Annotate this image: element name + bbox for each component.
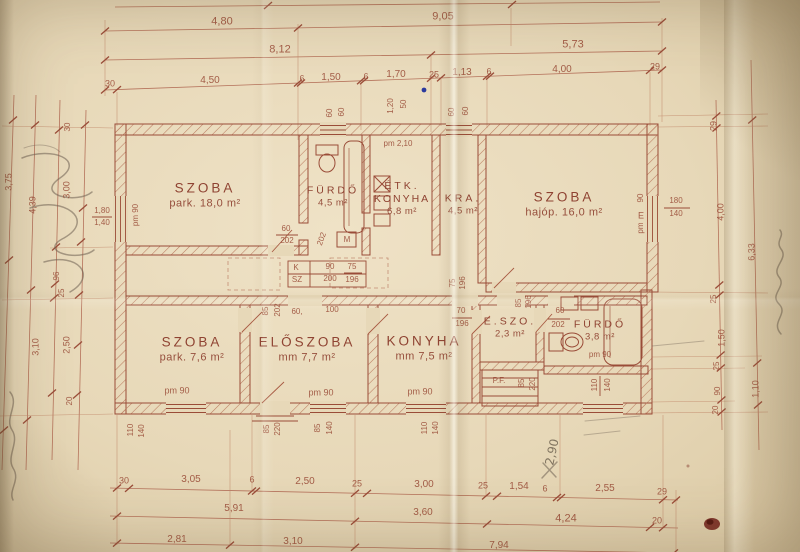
- dim-label: pm: [637, 222, 645, 233]
- room-name: SZOBA: [525, 190, 602, 207]
- room-label-szoba-16: SZOBAhajóp. 16,0 m²: [525, 190, 602, 221]
- dim-label: 85: [518, 379, 526, 388]
- dim-label: 100: [325, 306, 338, 314]
- dim-label: 4,50: [200, 76, 219, 86]
- dim-label: 196: [455, 320, 468, 328]
- dim-label: 6,33: [748, 243, 757, 261]
- dim-label: M: [344, 236, 351, 244]
- dim-label: 140: [432, 421, 440, 434]
- dim-label: pm 90: [132, 204, 140, 226]
- dim-label: 6: [486, 68, 491, 77]
- room-name: KONYHA: [386, 334, 461, 351]
- room-area: 3,8 m²: [574, 332, 626, 344]
- dim-label: 110: [421, 422, 429, 435]
- dim-label: 30: [119, 477, 129, 486]
- dim-label: 60,: [291, 308, 302, 316]
- dim-label: 196: [345, 276, 358, 284]
- dim-label: 140: [138, 424, 146, 437]
- room-name: FÜRDŐ: [307, 185, 359, 198]
- dim-label: 3,10: [32, 338, 41, 356]
- dim-label: 200: [323, 275, 336, 283]
- dim-label: 85: [515, 299, 523, 308]
- room-label-konyha-75: KONYHAmm 7,5 m²: [386, 334, 461, 365]
- dim-label: 4,39: [29, 196, 38, 214]
- dim-label: 3,60: [413, 508, 432, 518]
- dim-label: 75: [348, 263, 357, 271]
- room-area: 4,5 m²: [445, 206, 482, 218]
- dim-label: 25: [713, 362, 721, 371]
- dim-label: 140: [326, 421, 334, 434]
- dim-label: 4,80: [211, 17, 232, 28]
- dim-label: pm 90: [164, 387, 189, 396]
- dim-label: 60: [462, 107, 470, 116]
- dim-label: 29: [657, 488, 667, 497]
- room-area: park. 7,6 m²: [160, 352, 225, 366]
- room-area: mm 7,5 m²: [386, 351, 461, 365]
- dim-label: 1,54: [509, 482, 528, 492]
- room-label-etk-konyha: ÉTK.KONYHA6,8 m²: [374, 180, 430, 218]
- room-name-line2: KONYHA: [374, 193, 430, 206]
- dim-label: 3,00: [414, 480, 433, 490]
- room-label-furdo-45: FÜRDŐ4,5 m²: [307, 185, 359, 210]
- dim-label: 140: [604, 378, 612, 391]
- dim-label: E: [638, 212, 644, 221]
- dim-label: 29: [650, 63, 660, 72]
- room-name: E.SZO.: [484, 316, 536, 329]
- dim-label: 4,00: [552, 65, 571, 75]
- dim-label: 1,50: [321, 73, 340, 83]
- dim-label: 202: [551, 321, 564, 329]
- dim-label: 202: [274, 303, 282, 316]
- dim-label: 2,50: [295, 477, 314, 487]
- dim-label: 25: [429, 71, 439, 80]
- dim-label: 60: [326, 109, 334, 118]
- room-label-furdo-38: FÜRDŐ3,8 m²: [574, 319, 626, 344]
- dim-label: 7,94: [489, 541, 508, 551]
- dim-label: 2,50: [63, 336, 72, 354]
- dim-label: 60: [338, 108, 346, 117]
- room-name: ÉTK.: [374, 180, 430, 193]
- dim-label: 25: [352, 480, 362, 489]
- dim-label: 1,50: [718, 329, 727, 347]
- dim-label: K: [293, 264, 298, 272]
- dim-label: 29: [710, 121, 719, 131]
- dim-label: 3,05: [181, 475, 200, 485]
- dim-label: 85: [263, 425, 271, 434]
- dim-label: 60: [282, 225, 291, 233]
- room-label-eloszoba: ELŐSZOBAmm 7,7 m²: [259, 335, 356, 366]
- room-name: FÜRDŐ: [574, 319, 626, 332]
- dim-label: 90: [714, 387, 722, 396]
- dim-label: 1,70: [386, 70, 405, 80]
- room-label-kra: KRA.4,5 m²: [445, 193, 482, 218]
- room-area: 6,8 m²: [374, 206, 430, 218]
- dim-label: 20: [712, 406, 720, 415]
- dim-label: 85: [314, 424, 322, 433]
- dim-label: 60: [448, 108, 456, 117]
- dim-label: 4,00: [717, 203, 726, 221]
- dim-label: 96: [53, 272, 61, 281]
- dim-label: 6: [363, 73, 368, 82]
- dim-label: 25: [710, 295, 718, 304]
- blueprint-sheet: 4,809,058,125,73304,5061,5061,70251,1364…: [0, 0, 800, 552]
- dim-label: 196: [459, 276, 467, 289]
- dim-label: 202: [280, 237, 293, 245]
- dim-label: 5,73: [562, 40, 583, 51]
- room-name: SZOBA: [160, 335, 225, 352]
- handwritten-annotation: 2,90: [543, 438, 560, 467]
- dim-label: 3,75: [5, 173, 14, 191]
- dim-label: P.F.: [493, 377, 506, 385]
- room-name: SZOBA: [169, 181, 240, 198]
- room-label-szoba-18: SZOBApark. 18,0 m²: [169, 181, 240, 212]
- room-area: park. 18,0 m²: [169, 198, 240, 212]
- dim-label: 5,91: [224, 504, 243, 514]
- dim-label: 6: [542, 485, 547, 494]
- dim-label: pm 90: [407, 388, 432, 397]
- room-area: mm 7,7 m²: [259, 352, 356, 366]
- room-label-e-szo: E.SZO.2,3 m²: [484, 316, 536, 341]
- dim-label: 90: [326, 263, 335, 271]
- room-area: 4,5 m²: [307, 198, 359, 210]
- dim-label: pm 90: [589, 351, 611, 359]
- dim-label: 20: [652, 517, 662, 526]
- dim-label: 220: [274, 422, 282, 435]
- dim-label: 220: [529, 377, 537, 390]
- dim-label: 140: [669, 210, 682, 218]
- dim-label: 110: [591, 379, 599, 392]
- dim-label: 2,81: [167, 535, 186, 545]
- dim-label: pm 90: [308, 389, 333, 398]
- dim-label: 3,10: [283, 537, 302, 547]
- dim-label: 180: [669, 197, 682, 205]
- dim-label: 6: [299, 75, 304, 84]
- dim-label: SZ: [292, 276, 302, 284]
- dim-label: 75: [449, 279, 457, 288]
- room-area: hajóp. 16,0 m²: [525, 207, 602, 221]
- text-labels-layer: 4,809,058,125,73304,5061,5061,70251,1364…: [0, 0, 800, 552]
- dim-label: 70: [457, 307, 466, 315]
- dim-label: 90: [637, 194, 645, 203]
- dim-label: 85: [262, 307, 270, 316]
- dim-label: 3,00: [63, 181, 72, 199]
- dim-label: 25: [478, 482, 488, 491]
- dim-label: 30: [105, 80, 115, 89]
- dim-label: pm 2,10: [384, 140, 413, 148]
- dim-label: 1,13: [452, 68, 471, 78]
- dim-label: 196: [525, 295, 533, 308]
- dim-label: 4,24: [555, 514, 576, 525]
- dim-label: 9,05: [432, 12, 453, 23]
- dim-label: 50: [400, 100, 408, 109]
- room-area: 2,3 m²: [484, 329, 536, 341]
- dim-label: 202: [316, 231, 328, 246]
- dim-label: 30: [64, 123, 72, 132]
- room-name: KRA.: [445, 193, 482, 206]
- dim-label: 1,20: [387, 98, 395, 114]
- room-label-szoba-76: SZOBApark. 7,6 m²: [160, 335, 225, 366]
- dim-label: 1,80: [94, 207, 110, 215]
- dim-label: 110: [127, 424, 135, 437]
- dim-label: 1,40: [94, 219, 110, 227]
- dim-label: 6: [249, 476, 254, 485]
- room-name: ELŐSZOBA: [259, 335, 356, 352]
- dim-label: 25: [58, 289, 66, 298]
- dim-label: 60: [556, 307, 565, 315]
- dim-label: 1,10: [752, 380, 761, 398]
- dim-label: 20: [66, 397, 74, 406]
- dim-label: 8,12: [269, 45, 290, 56]
- dim-label: 2,55: [595, 484, 614, 494]
